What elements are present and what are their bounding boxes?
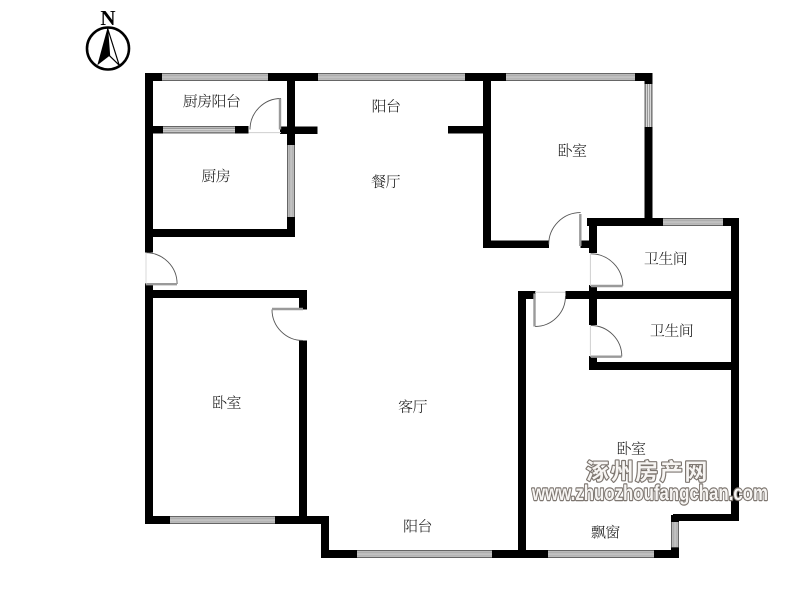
svg-text:www.zhuozhoufangchan.com: www.zhuozhoufangchan.com (531, 482, 768, 505)
